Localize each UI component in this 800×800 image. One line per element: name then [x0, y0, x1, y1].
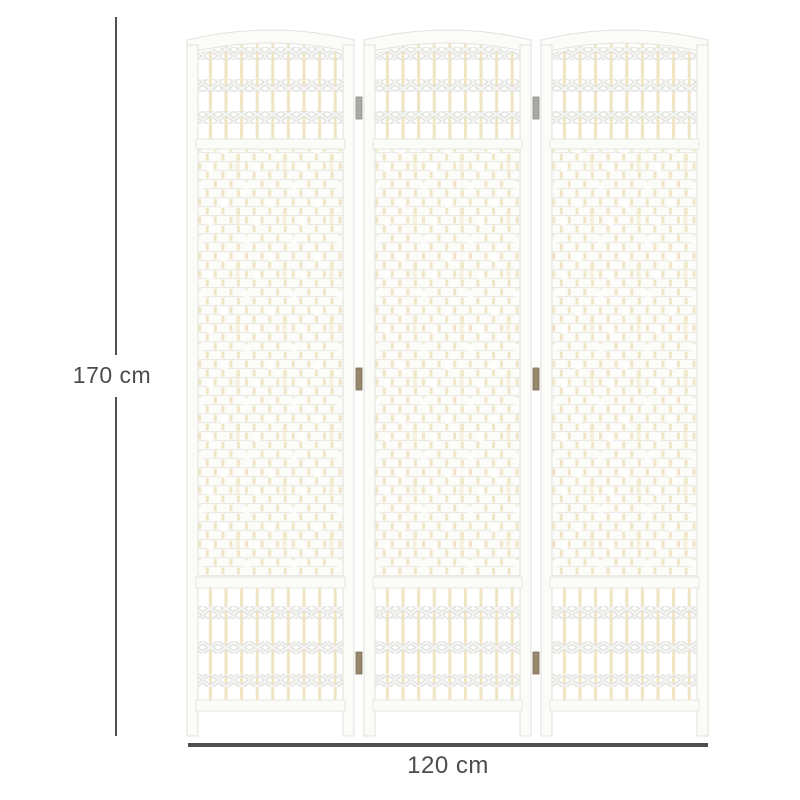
hinge-left-middle: [356, 368, 362, 390]
hinge-left-bottom: [356, 652, 362, 674]
hinge-right-top: [533, 97, 539, 119]
width-dimension-label: 120 cm: [368, 752, 528, 780]
hinge-left-top: [356, 97, 362, 119]
height-dimension-line-lower: [115, 397, 117, 736]
height-dimension-line-upper: [115, 17, 117, 355]
divider-panel-2: [364, 30, 531, 736]
divider-panel-3: [541, 30, 708, 736]
hinge-right-middle: [533, 368, 539, 390]
hinge-right-bottom: [533, 652, 539, 674]
divider-panel-1: [187, 30, 354, 736]
product-image: 170 cm 120 cm: [0, 0, 800, 800]
height-dimension-label: 170 cm: [52, 361, 172, 389]
room-divider-illustration: [0, 0, 800, 800]
width-dimension-line: [188, 743, 708, 747]
